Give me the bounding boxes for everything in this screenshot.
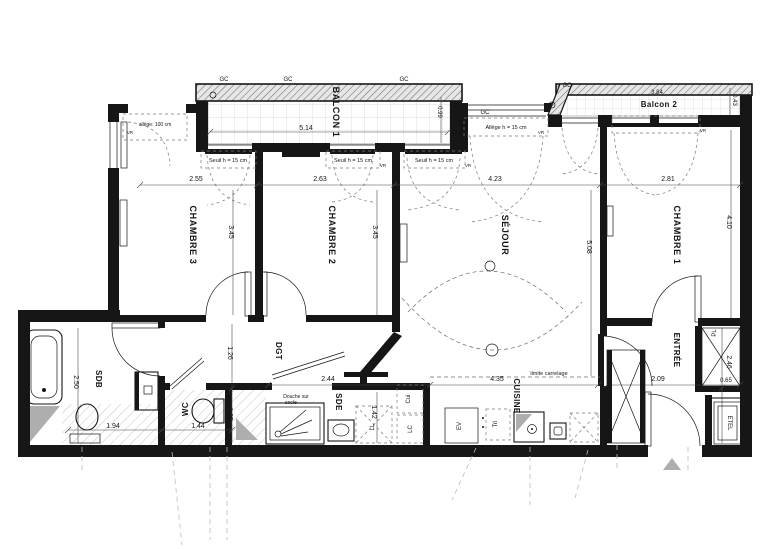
dim-etel-width: 0.65 <box>720 378 732 384</box>
tri-label: Tri <box>493 421 499 428</box>
room-label-chambre1: CHAMBRE 1 <box>672 206 682 265</box>
room-label-cuisine: CUISINE <box>512 378 521 414</box>
seuil-label: Seuil h = 15 cm <box>209 158 247 164</box>
vr-label: VR <box>538 130 545 135</box>
etel-label: ETEL <box>726 415 732 431</box>
gc-label: GC <box>481 110 491 116</box>
vr-label: VR <box>127 130 134 135</box>
room-label-sdb: SDB <box>94 370 103 388</box>
gc-label: GC <box>563 83 573 89</box>
vr-label: VR <box>380 163 387 168</box>
placard-label: PL <box>712 329 718 337</box>
room-label-wc: WC <box>181 402 190 416</box>
floor-plan: allège: 100 cm VR Seuil h = 15 cm VR Seu… <box>0 0 767 549</box>
dim-cuisine-width: 4.35 <box>490 376 504 383</box>
gc-label: GC <box>220 77 230 83</box>
room-label-sejour: SÉJOUR <box>500 215 510 256</box>
gc-label: GC <box>284 77 294 83</box>
dim-sejour-height: 5.08 <box>585 240 592 254</box>
seuil-label: Seuil h = 15 cm <box>637 123 675 129</box>
room-label-balcon2: Balcon 2 <box>641 100 678 109</box>
seuil-label: Seuil h = 15 cm <box>334 158 372 164</box>
floor-plan-page: allège: 100 cm VR Seuil h = 15 cm VR Seu… <box>0 0 767 549</box>
douche-label-2: socle <box>285 400 297 406</box>
vr-label: VR <box>256 163 263 168</box>
room-label-sde: SDE <box>334 393 343 411</box>
room-label-entree: ENTRÉE <box>672 333 681 368</box>
allege-15-label: Allège h = 15 cm <box>485 125 527 131</box>
dim-ch1-height: 4.10 <box>725 215 732 229</box>
dim-balcon1-width: 5.14 <box>299 125 313 132</box>
gc-label: GC <box>400 77 410 83</box>
room-label-balcon1: BALCON 1 <box>331 87 341 138</box>
dim-ch2-width: 2.63 <box>313 176 327 183</box>
dim-ch3-width: 2.55 <box>189 176 203 183</box>
room-label-dgt: DGT <box>274 342 283 360</box>
seuil-label: Seuil h = 15 cm <box>415 158 453 164</box>
vr-label: VR <box>465 163 472 168</box>
vr-label: VR <box>700 128 707 133</box>
allege-100-label: allège: 100 cm <box>139 122 172 128</box>
dim-entree-height: 2.46 <box>725 355 732 369</box>
dim-sde-depth: 1.42 <box>370 405 377 419</box>
dim-sdb-width: 1.94 <box>106 423 120 430</box>
lc-label: LC <box>408 424 414 432</box>
dim-sejour-width: 4.23 <box>488 176 502 183</box>
dim-wc-depth: 1.35 <box>226 407 233 421</box>
dim-ch1-width: 2.81 <box>661 176 675 183</box>
dim-balcon2-width: 3.84 <box>651 90 663 96</box>
dim-dgt-width: 2.44 <box>321 376 335 383</box>
sink-label: EV <box>457 422 463 430</box>
dim-entree-width: 2.09 <box>651 376 665 383</box>
dim-sdb-height: 2.50 <box>72 375 79 389</box>
room-label-chambre3: CHAMBRE 3 <box>188 206 198 265</box>
dim-balcon2-depth: 0.43 <box>731 94 737 106</box>
dim-ch2-height: 3.45 <box>371 225 378 239</box>
limite-carrelage-label: limite carrelage <box>530 371 567 377</box>
dim-dgt-height: 1.26 <box>226 346 233 360</box>
dim-wc-width: 1.44 <box>191 423 205 430</box>
dim-balcon1-depth: 0.99 <box>436 106 442 118</box>
cui-label: Cui <box>406 394 412 403</box>
washing-machine-label: LL <box>370 423 376 430</box>
room-label-chambre2: CHAMBRE 2 <box>327 206 337 265</box>
dim-ch3-height: 3.45 <box>227 225 234 239</box>
door-leaf <box>598 334 604 386</box>
